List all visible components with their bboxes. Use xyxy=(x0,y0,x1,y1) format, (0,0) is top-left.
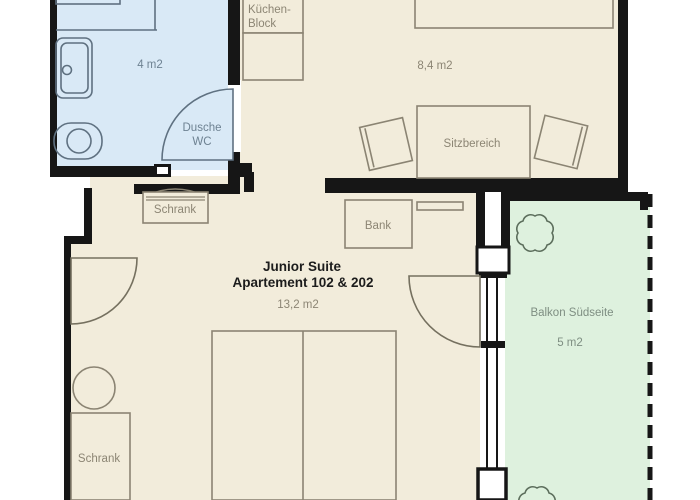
bathroom-area-label: 4 m2 xyxy=(137,59,163,71)
window-glazing xyxy=(478,278,506,500)
bed xyxy=(212,331,396,500)
balcony-area-label: 5 m2 xyxy=(557,337,583,349)
suite-subtitle: Apartement 102 & 202 xyxy=(232,275,373,290)
wardrobe-label-bottom: Schrank xyxy=(78,453,120,465)
sideboard-top xyxy=(415,0,613,28)
living-area-label: 8,4 m2 xyxy=(417,60,452,72)
kitchen-label-line2: Block xyxy=(248,18,276,30)
bathroom-label-line2: WC xyxy=(192,136,211,148)
door-pier-top xyxy=(477,247,509,273)
bench-label: Bank xyxy=(365,220,391,232)
kitchen-cabinet xyxy=(243,33,303,80)
suite-area-label: 13,2 m2 xyxy=(277,299,319,311)
floor-plan: 4 m2 Dusche WC Küchen- Block 8,4 m2 Sitz… xyxy=(0,0,700,500)
suite-title: Junior Suite xyxy=(263,259,341,274)
window-mullion xyxy=(481,341,505,348)
door-pier-bottom xyxy=(478,469,506,500)
floor-plan-svg: 4 m2 Dusche WC Küchen- Block 8,4 m2 Sitz… xyxy=(0,0,700,500)
balcony-label: Balkon Südseite xyxy=(530,307,613,319)
kitchen-label-line1: Küchen- xyxy=(248,4,291,16)
wall-shelf xyxy=(417,202,463,210)
wardrobe-label-top: Schrank xyxy=(154,204,196,216)
bathroom-label-line1: Dusche xyxy=(183,122,222,134)
seating-label: Sitzbereich xyxy=(444,138,501,150)
